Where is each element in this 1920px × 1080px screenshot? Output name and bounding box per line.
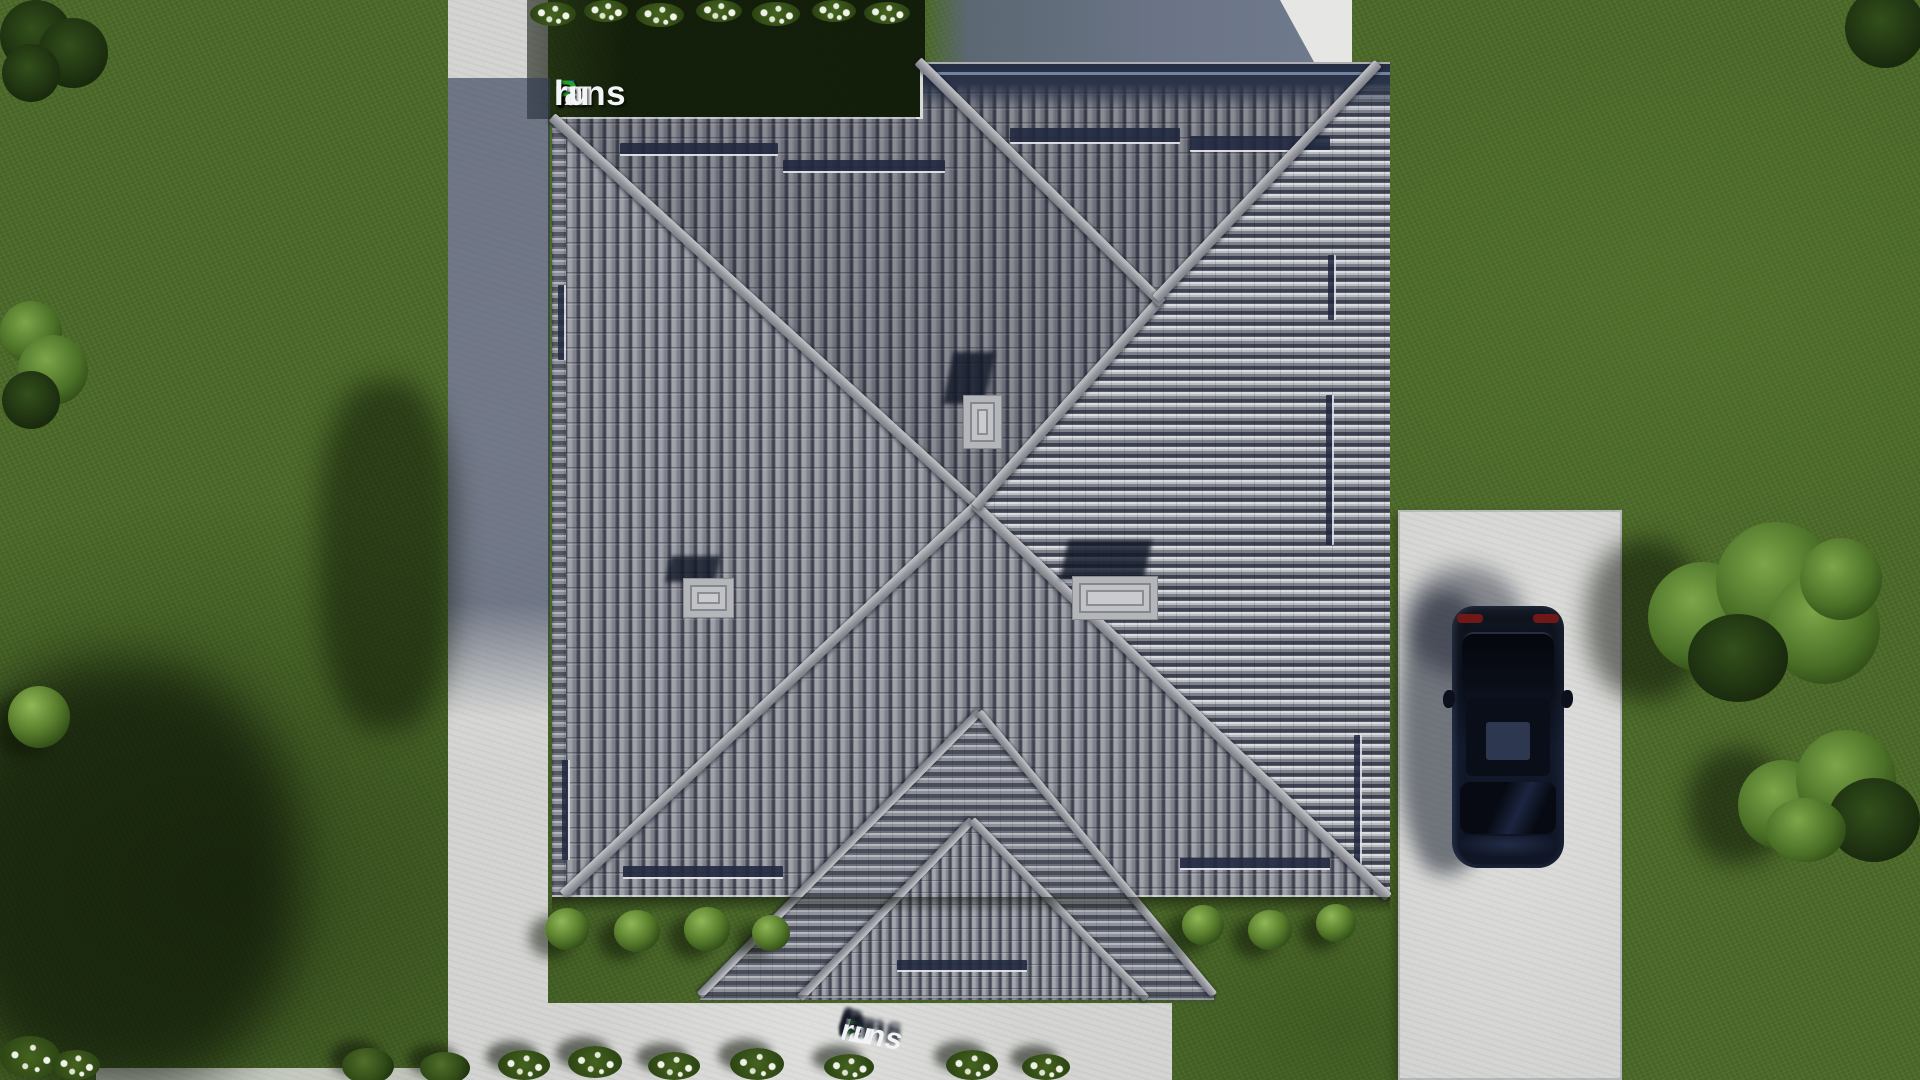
snow-guard: [897, 960, 1027, 972]
roof-upper-ridge-highlight: [920, 72, 1390, 75]
flower-cluster: [52, 1050, 100, 1080]
tree-west: [0, 293, 96, 435]
car-sunroof: [1486, 722, 1530, 760]
tree-foliage: [1688, 614, 1788, 702]
flower-cluster: [730, 1048, 784, 1080]
bush: [614, 910, 660, 952]
snow-guard: [1326, 395, 1334, 545]
tree-cluster-northwest: [0, 0, 120, 110]
car-windshield: [1460, 782, 1556, 834]
tree-foliage: [1800, 538, 1882, 620]
snow-guard: [620, 143, 778, 156]
roof-vent: [683, 578, 734, 618]
car-hood: [1458, 836, 1558, 864]
flower-cluster: [752, 2, 800, 26]
flower-cluster: [584, 0, 628, 22]
car-roof: [1466, 698, 1550, 776]
snow-guard: [1328, 255, 1336, 320]
snow-guard: [783, 160, 945, 173]
bush-west: [8, 686, 70, 748]
flower-cluster: [946, 1050, 998, 1080]
flower-cluster: [498, 1050, 550, 1080]
flower-cluster: [648, 1052, 700, 1080]
aerial-render: FixPlans.ru FixPlans.ru: [0, 0, 1920, 1080]
tree-cluster-east-lower: [1738, 730, 1920, 866]
snow-guard: [1354, 735, 1362, 870]
flower-cluster: [824, 1054, 874, 1080]
flower-cluster: [1022, 1054, 1070, 1080]
snow-guard: [562, 760, 570, 860]
snow-guard: [1010, 128, 1180, 144]
flower-cluster: [696, 0, 742, 22]
bush: [1316, 904, 1356, 942]
flower-cluster: [0, 1036, 60, 1078]
car-mirror-right: [1561, 690, 1573, 708]
bush: [545, 908, 589, 950]
watermark-segment: ru: [554, 74, 590, 114]
eave-gutter-line: [552, 117, 920, 119]
roof-upper-shadow-band: [920, 62, 1390, 110]
car: [1452, 606, 1564, 868]
tree-cluster-east-upper: [1648, 522, 1884, 706]
eave-gutter-line: [920, 62, 1390, 64]
flower-cluster: [636, 3, 684, 27]
house-shadow-on-path: [448, 78, 550, 718]
porch-gable-roof: [700, 712, 1216, 1000]
car-taillight-left: [1457, 614, 1483, 623]
bush: [684, 907, 730, 951]
bush: [752, 915, 790, 951]
flower-cluster: [864, 2, 910, 24]
car-rear-window: [1462, 632, 1554, 690]
porch-eave-shadow: [700, 995, 1216, 1005]
tree-foliage: [1766, 798, 1846, 862]
tree-foliage: [2, 371, 60, 429]
house-shadow-west: [318, 380, 454, 730]
flower-cluster: [530, 2, 576, 26]
bush: [1248, 910, 1292, 950]
flower-cluster: [812, 0, 856, 22]
roof-vent: [1072, 576, 1158, 620]
car-taillight-right: [1533, 614, 1559, 623]
tree-foliage: [2, 44, 60, 102]
bush: [420, 1052, 470, 1080]
bush: [1182, 905, 1224, 945]
chimney-shadow: [1060, 540, 1153, 580]
snow-guard: [558, 285, 566, 360]
bush: [342, 1048, 394, 1080]
flower-cluster: [568, 1046, 622, 1078]
car-mirror-left: [1443, 690, 1455, 708]
chimney: [963, 395, 1002, 449]
